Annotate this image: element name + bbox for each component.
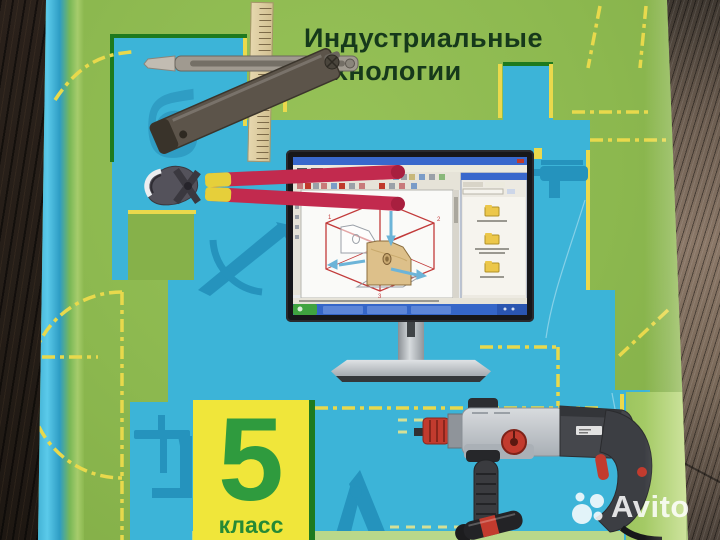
- book-cover: б Индустриальные технологии 5 класс: [0, 0, 720, 540]
- pincers-illustration: [145, 165, 405, 212]
- avito-logo-icon: [570, 486, 608, 528]
- mode-dial: [502, 430, 526, 454]
- bevel-gauge-illustration: [144, 47, 358, 155]
- screwdriver-illustration: [448, 508, 540, 540]
- avito-watermark: Avito: [570, 486, 690, 528]
- drill-chuck: [423, 418, 449, 444]
- photo-stage: б Индустриальные технологии 5 класс: [0, 0, 720, 540]
- avito-wordmark: Avito: [611, 489, 690, 525]
